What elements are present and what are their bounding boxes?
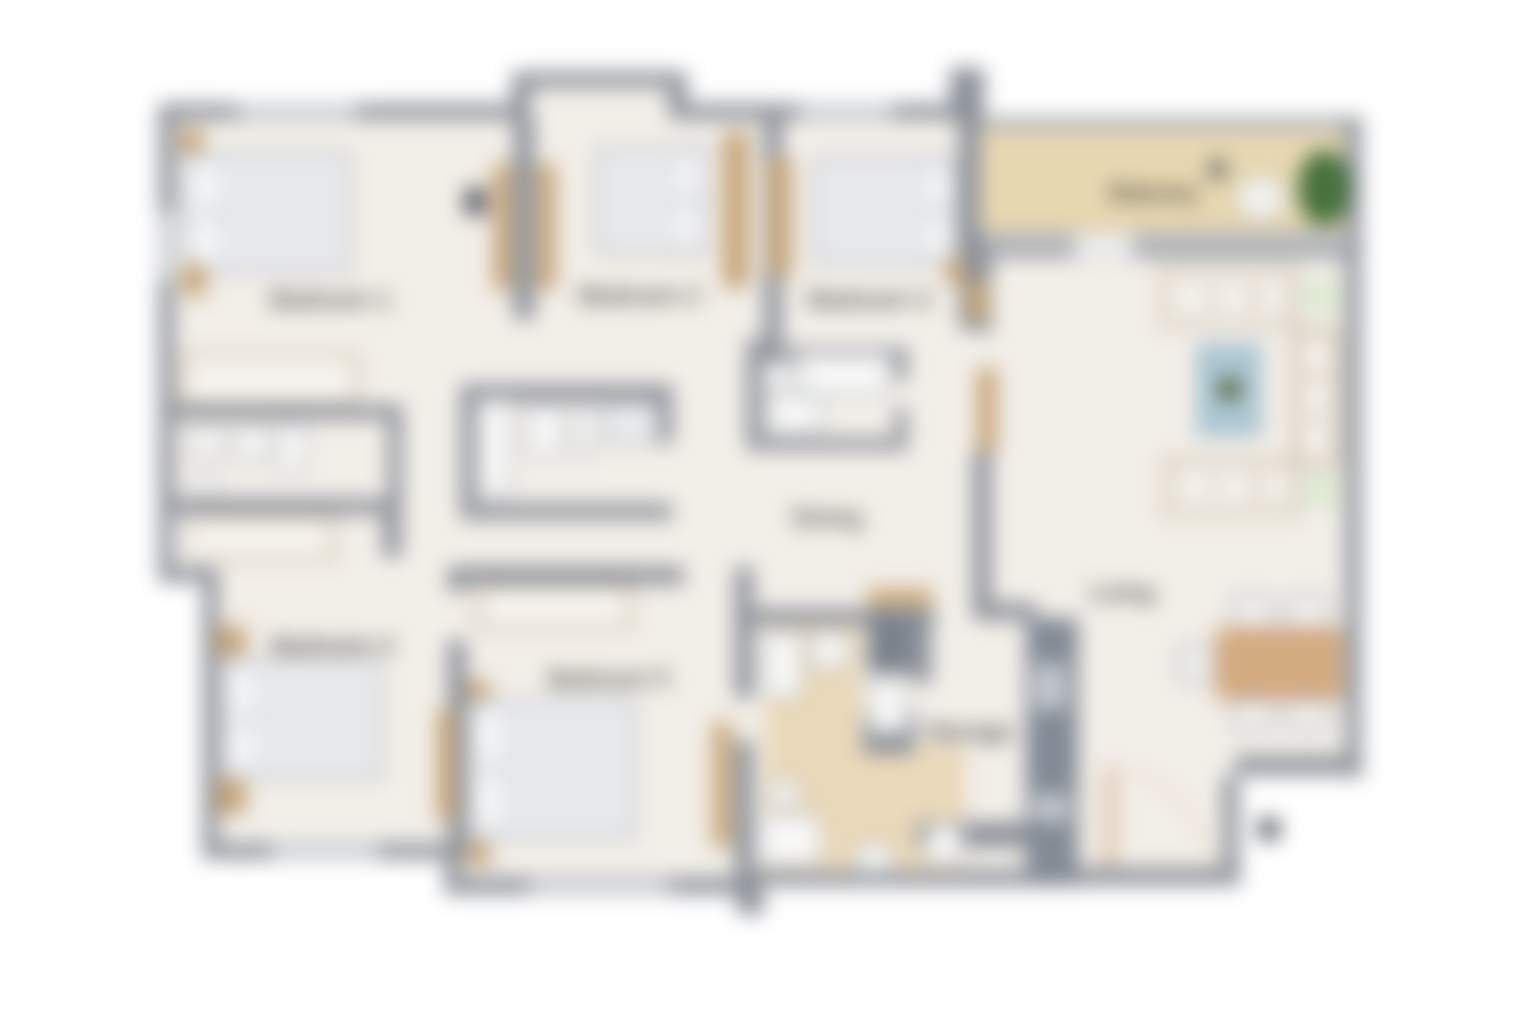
svg-text:Bedroom 3: Bedroom 3: [808, 286, 930, 314]
svg-text:Storage: Storage: [925, 718, 1013, 746]
svg-text:Bedroom 2: Bedroom 2: [579, 282, 701, 310]
svg-text:Dining: Dining: [792, 504, 863, 532]
svg-text:Bedroom 1: Bedroom 1: [270, 286, 392, 314]
svg-text:Bedroom 5: Bedroom 5: [548, 665, 670, 693]
svg-text:Living: Living: [1089, 579, 1154, 607]
svg-text:Balcony: Balcony: [1110, 179, 1199, 207]
svg-text:Bedroom 4: Bedroom 4: [272, 632, 394, 660]
